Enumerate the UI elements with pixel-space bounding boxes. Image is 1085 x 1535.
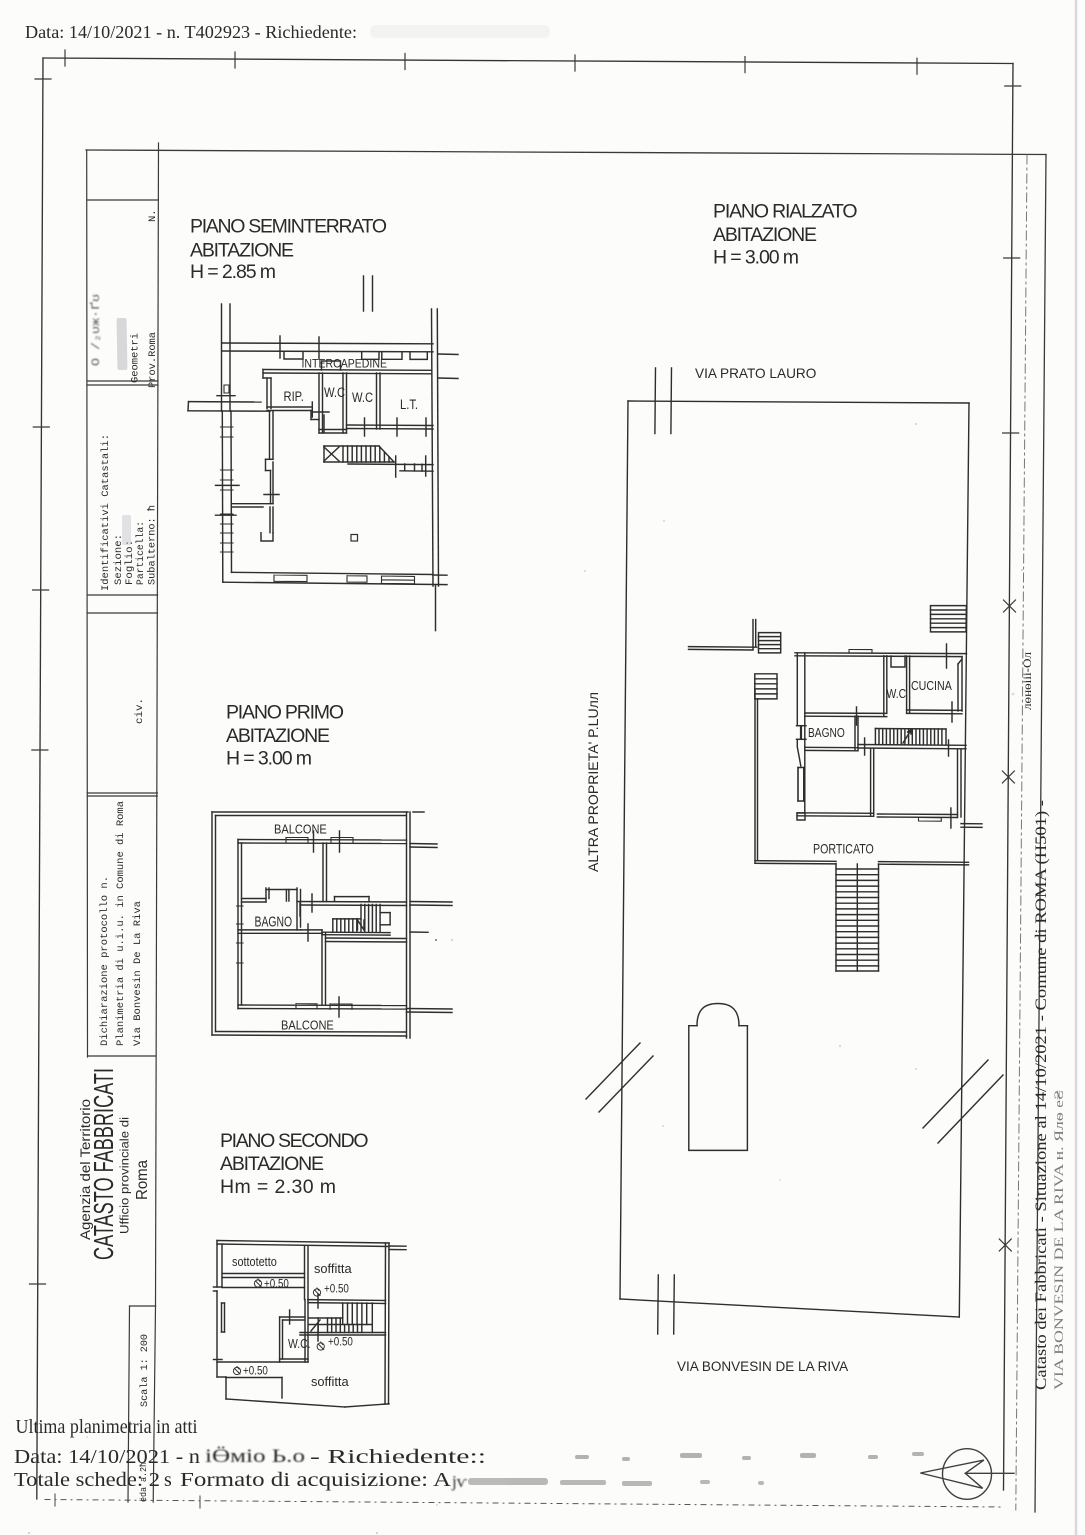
- svg-text:ABITAZIONE: ABITAZIONE: [220, 1153, 324, 1175]
- svg-text:Scala 1: 200: Scala 1: 200: [139, 1334, 151, 1407]
- svg-text:Planimetria di u.i.u. in Comun: Planimetria di u.i.u. in Comune di Roma: [115, 801, 127, 1046]
- svg-text:CATASTO FABBRICATI: CATASTO FABBRICATI: [88, 1068, 119, 1260]
- svg-text:PIANO SEMINTERRATO: PIANO SEMINTERRATO: [190, 216, 387, 238]
- svg-text:H = 3.00 m: H = 3.00 m: [226, 748, 312, 770]
- svg-text:Particella:: Particella:: [135, 521, 147, 585]
- svg-text:ABITAZIONE: ABITAZIONE: [226, 725, 330, 747]
- svg-text:BAGNO: BAGNO: [808, 726, 845, 740]
- svg-text:H = 2.85 m: H = 2.85 m: [190, 261, 276, 283]
- svg-text:Roma: Roma: [134, 1160, 151, 1200]
- svg-text:L.T.: L.T.: [400, 397, 418, 412]
- svg-text:Formato di acquisizione: A: Formato di acquisizione: A: [180, 1469, 452, 1491]
- svg-text:soffitta: soffitta: [311, 1376, 349, 1389]
- svg-text:RIP.: RIP.: [284, 389, 304, 404]
- svg-text:BAGNO: BAGNO: [255, 913, 293, 930]
- svg-text:Dichiarazione protocollo n.: Dichiarazione protocollo n.: [99, 876, 111, 1046]
- svg-text:ѕ: ѕ: [164, 1469, 172, 1491]
- svg-text:Totale schede: 2: Totale schede: 2: [14, 1469, 160, 1491]
- svg-text:W.C.: W.C.: [288, 1337, 311, 1351]
- svg-text:PORTICATO: PORTICATO: [813, 841, 874, 856]
- svg-text:civ.: civ.: [134, 698, 146, 724]
- svg-text:Ultima planimetria in atti: Ultima planimetria in atti: [16, 1416, 198, 1438]
- svg-text:Catasto dei Fabbricati - Situa: Catasto dei Fabbricati - Situazione al 1…: [1033, 800, 1050, 1390]
- svg-text:VIA BONVESIN DE LA RIVA: VIA BONVESIN DE LA RIVA: [677, 1359, 849, 1374]
- svg-text:Prov.Roma: Prov.Roma: [147, 332, 159, 388]
- svg-text:sottotetto: sottotetto: [232, 1256, 277, 1269]
- svg-text:іӪміо Ь.о: іӪміо Ь.о: [205, 1446, 305, 1467]
- svg-text:INTERCAPEDINE: INTERCAPEDINE: [302, 358, 387, 371]
- svg-text:+0.50: +0.50: [324, 1283, 349, 1296]
- svg-text:PIANO RIALZATO: PIANO RIALZATO: [713, 201, 858, 223]
- svg-text:ABITAZIONE: ABITAZIONE: [713, 224, 817, 246]
- svg-text:Subalterno: ћ: Subalterno: ћ: [147, 505, 159, 585]
- svg-text:O /₂ʋж·Ґʊ: O /₂ʋж·Ґʊ: [89, 294, 103, 366]
- svg-text:+0.50: +0.50: [243, 1365, 268, 1378]
- svg-text:VIA BONVESIN DE LA RIVA н. Ялѳ: VIA BONVESIN DE LA RIVA н. Ялѳ е₴: [1051, 1090, 1066, 1390]
- svg-text:CUCINA: CUCINA: [911, 679, 952, 693]
- svg-text:јѵ: јѵ: [451, 1472, 467, 1491]
- svg-text:BALCONE: BALCONE: [274, 822, 327, 836]
- svg-text:Via Bonvesin De La Riva: Via Bonvesin De La Riva: [132, 901, 144, 1046]
- svg-text:+0.50: +0.50: [264, 1278, 289, 1291]
- svg-text:soffitta: soffitta: [314, 1263, 352, 1276]
- svg-text:N.: N.: [147, 209, 159, 222]
- svg-text:H = 3.00 m: H = 3.00 m: [713, 247, 799, 269]
- svg-text:Identificativi Catastali:: Identificativi Catastali:: [100, 434, 112, 591]
- svg-text:ALTRA PROPRIETA' P.LUлл: ALTRA PROPRIETA' P.LUлл: [586, 692, 601, 872]
- svg-text:ABITAZIONE: ABITAZIONE: [190, 240, 294, 262]
- svg-text:- Richiedente::: - Richiedente::: [310, 1446, 486, 1468]
- svg-text:Data: 14/10/2021 - n. T402923: Data: 14/10/2021 - n. T402923 - Richiede…: [25, 22, 357, 42]
- svg-text:BALCONE: BALCONE: [281, 1018, 334, 1032]
- svg-text:W.C: W.C: [324, 385, 345, 400]
- svg-text:PIANO SECONDO: PIANO SECONDO: [220, 1130, 369, 1152]
- svg-text:лөнөііі-Ол: лөнөііі-Ол: [1022, 652, 1034, 710]
- svg-text:Data: 14/10/2021 - n: Data: 14/10/2021 - n: [14, 1446, 200, 1468]
- svg-text:W.C: W.C: [352, 390, 373, 405]
- svg-text:Ufficio provinciale di: Ufficio provinciale di: [120, 1117, 132, 1234]
- svg-text:PIANO PRIMO: PIANO PRIMO: [226, 702, 344, 724]
- svg-text:Geometri: Geometri: [130, 333, 142, 383]
- svg-text:VIA PRATO LAURO: VIA PRATO LAURO: [695, 365, 816, 381]
- svg-text:Hm = 2.30 m: Hm = 2.30 m: [220, 1176, 336, 1198]
- svg-text:+0.50: +0.50: [328, 1336, 353, 1349]
- svg-text:W.C: W.C: [887, 687, 907, 701]
